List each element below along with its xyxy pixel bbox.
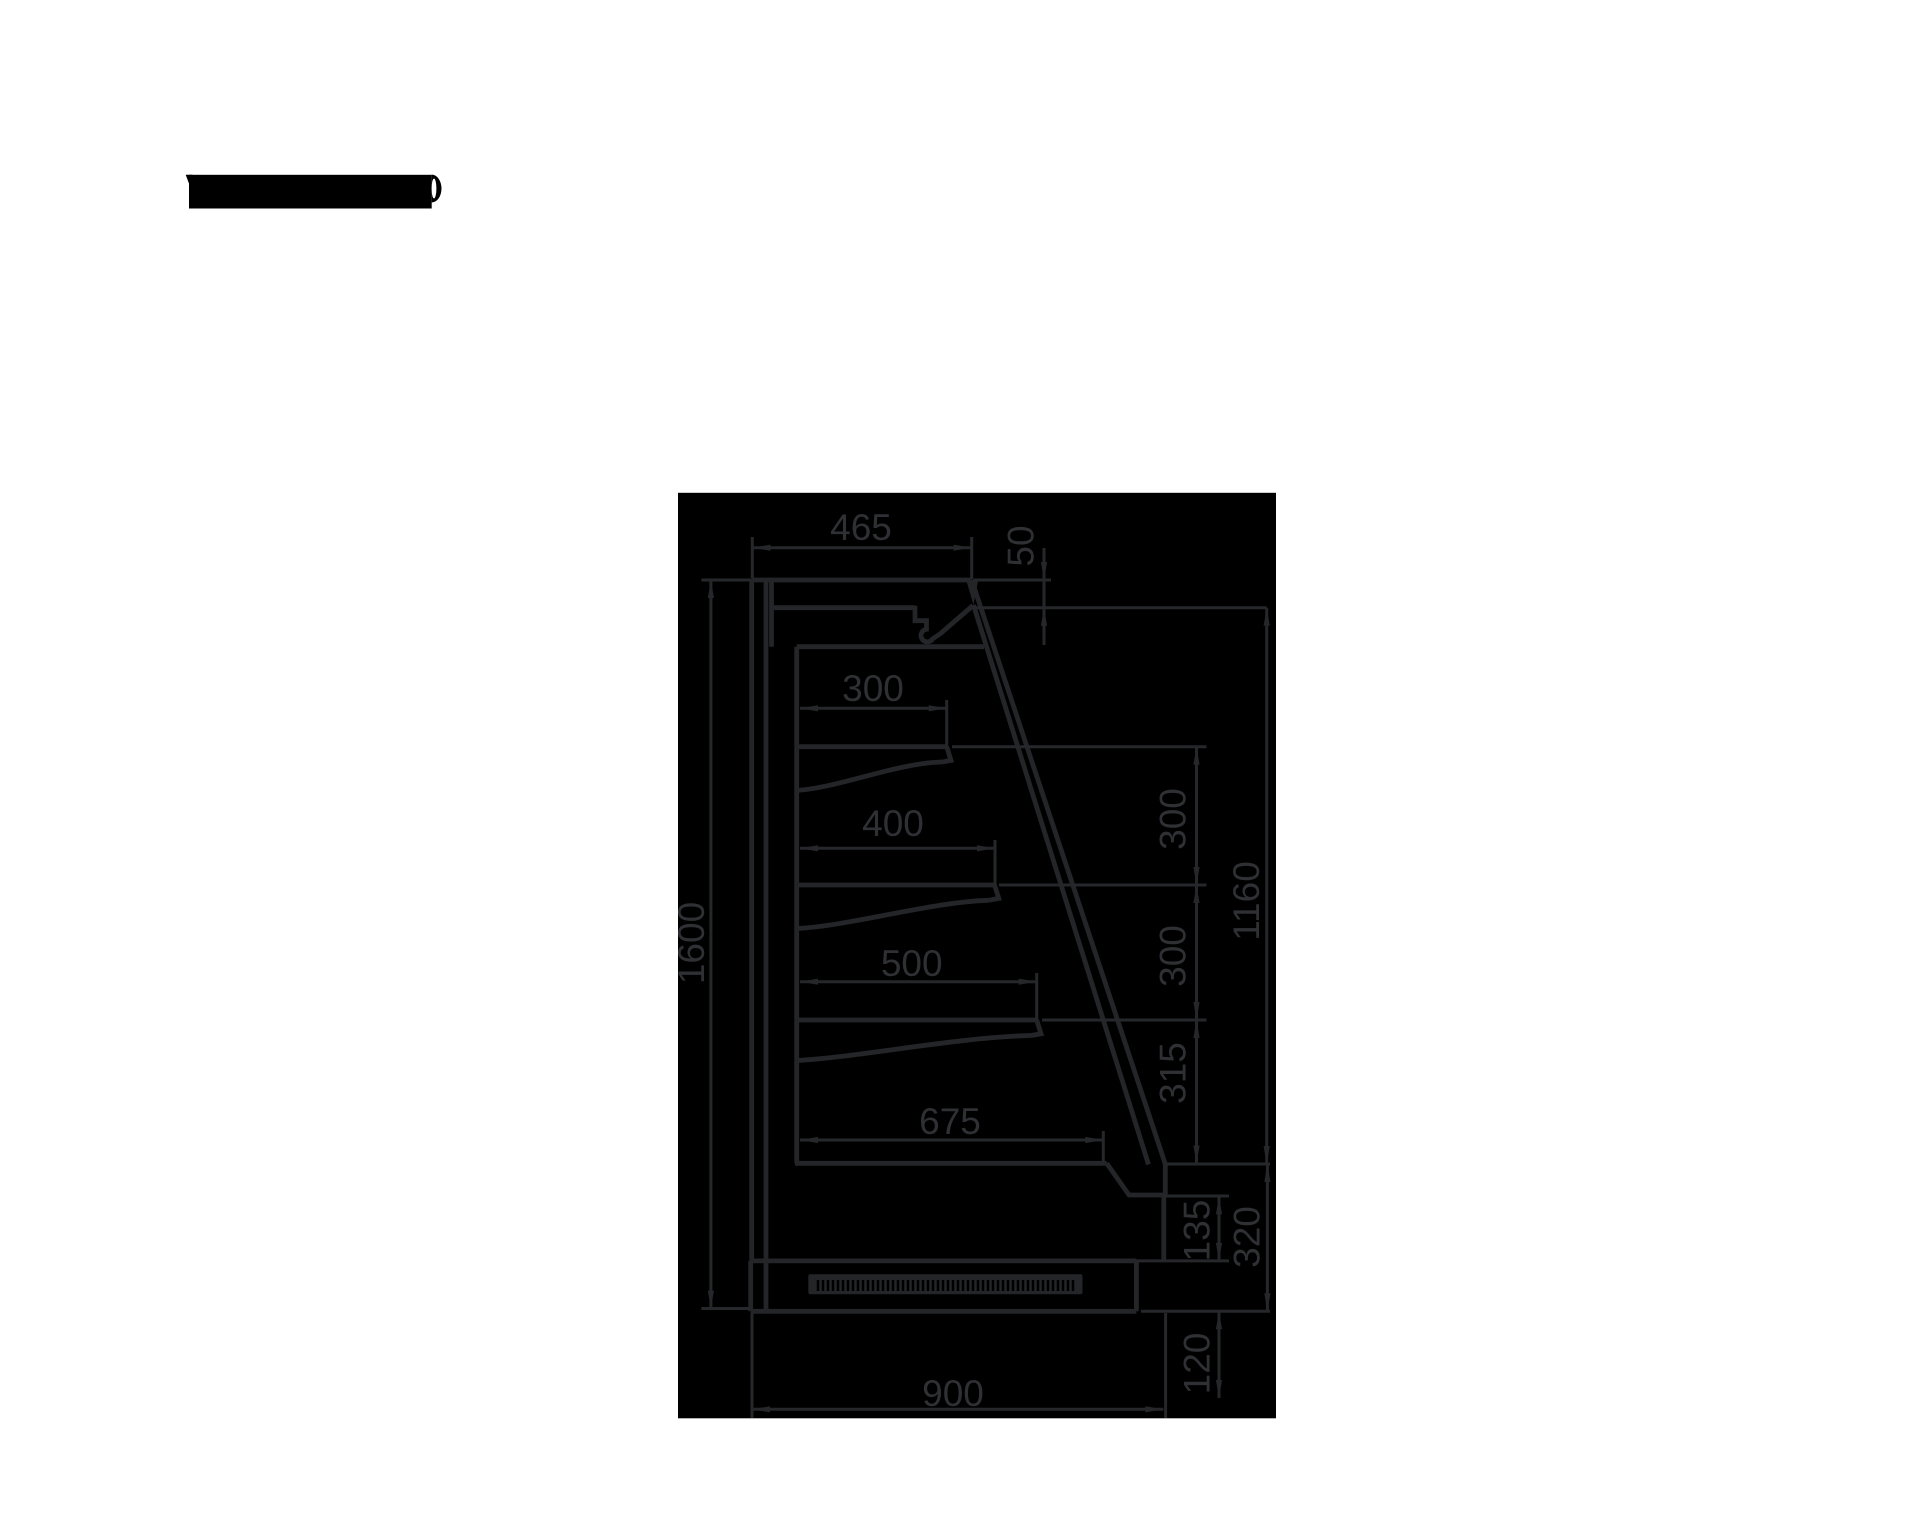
svg-text:300: 300	[1153, 925, 1194, 987]
svg-text:465: 465	[830, 507, 892, 548]
svg-text:300: 300	[842, 668, 904, 709]
svg-text:300: 300	[1153, 788, 1194, 850]
svg-text:675: 675	[919, 1101, 981, 1142]
svg-text:1600: 1600	[671, 902, 712, 984]
svg-text:400: 400	[862, 803, 924, 844]
svg-text:135: 135	[1177, 1200, 1218, 1262]
svg-text:320: 320	[1227, 1206, 1268, 1268]
svg-text:900: 900	[922, 1373, 984, 1414]
svg-text:50: 50	[1001, 525, 1042, 566]
svg-text:315: 315	[1153, 1042, 1194, 1104]
svg-text:120: 120	[1177, 1333, 1218, 1395]
svg-text:500: 500	[881, 943, 943, 984]
svg-text:1160: 1160	[1226, 861, 1267, 941]
